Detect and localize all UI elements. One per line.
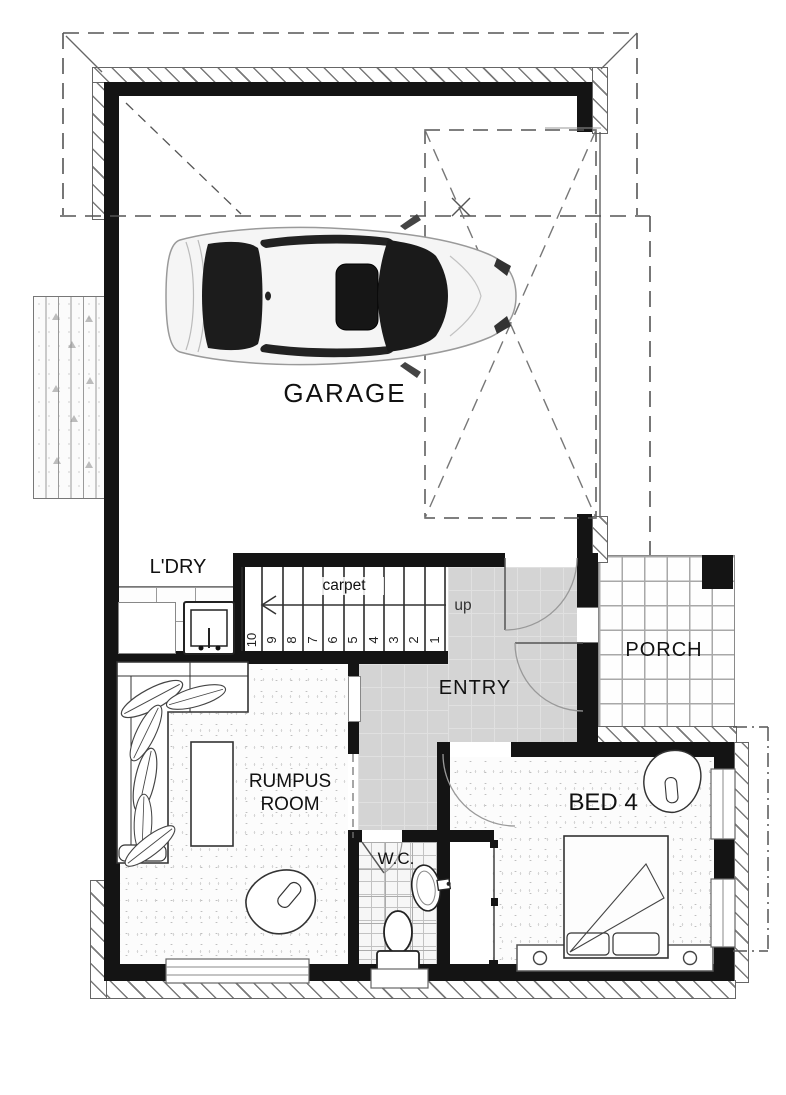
front-door-opening [577, 607, 598, 643]
entry-floor [448, 567, 578, 742]
rumpus-label-line2: ROOM [240, 793, 340, 816]
wall-segment [348, 722, 359, 754]
bed4-door-opening [450, 742, 511, 757]
wc-label: W.C. [366, 849, 426, 869]
wall-segment [714, 839, 734, 879]
laundry-label: L'DRY [138, 556, 218, 579]
eave-bottom [92, 980, 736, 999]
eave-right-upper [592, 67, 608, 134]
robe-floor [448, 842, 492, 965]
wall-segment [714, 742, 734, 769]
roofline-dashes [60, 33, 650, 555]
stairs-carpet-label: carpet [304, 577, 384, 595]
wall-segment [233, 553, 505, 567]
wall-segment [577, 553, 598, 607]
wall-segment [577, 641, 598, 744]
wall-segment [437, 830, 450, 965]
wall-segment [437, 742, 450, 842]
wc-door-opening [362, 830, 402, 842]
stairs-up-label: up [448, 597, 478, 615]
garage-door-outline [425, 128, 601, 518]
wall-segment [511, 742, 733, 757]
wall-segment [104, 651, 120, 981]
porch-post [702, 555, 733, 589]
floor-plan: GARAGE L'DRY carpet up ENTRY PORCH RUMPU… [0, 0, 786, 1095]
wall-segment [577, 82, 592, 132]
porch-label: PORCH [619, 639, 709, 662]
deck-strip [33, 296, 108, 499]
rumpus-label-line1: RUMPUS [240, 770, 340, 793]
bed4-label: BED 4 [558, 789, 648, 817]
stair-number: 1 [423, 629, 447, 651]
eave-bed4-right [734, 742, 749, 983]
rumpus-label: RUMPUS ROOM [240, 770, 340, 816]
wall-segment [104, 964, 734, 981]
wall-segment [348, 838, 359, 965]
rumpus-wall-niche [348, 676, 361, 722]
stair-direction-arrow [262, 596, 446, 614]
wall-segment [714, 947, 734, 981]
car-illustration [166, 214, 516, 378]
wall-segment [348, 830, 362, 842]
wall-segment [348, 664, 359, 676]
wall-segment [104, 82, 119, 664]
garage-label: GARAGE [265, 378, 425, 409]
wall-segment [104, 82, 592, 96]
entry-label: ENTRY [430, 677, 520, 700]
garage-entry-door-opening [505, 553, 577, 567]
washing-machine-space [118, 602, 176, 654]
